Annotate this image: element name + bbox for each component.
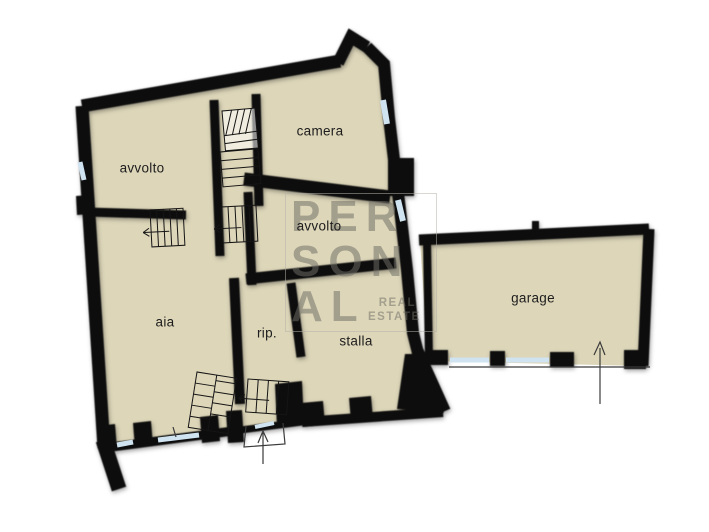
- room-label-aia: aia: [156, 315, 175, 330]
- watermark-subtext-line: ESTATE: [368, 311, 416, 325]
- room-label-garage: garage: [511, 291, 555, 306]
- room-label-avvolto-center: avvolto: [297, 219, 342, 234]
- room-label-stalla: stalla: [339, 334, 372, 349]
- watermark-subtext: REAL ESTATE: [368, 297, 416, 324]
- room-label-rip: rip.: [257, 326, 277, 341]
- floor-plan: avvoltocameraavvoltoaiarip.stallagarage …: [0, 0, 709, 532]
- room-label-camera: camera: [297, 124, 344, 139]
- window: [117, 442, 133, 445]
- staircase: [222, 108, 258, 151]
- watermark-subtext-line: REAL: [368, 297, 416, 311]
- window: [383, 100, 387, 124]
- watermark-text: SON: [291, 239, 436, 284]
- room-label-avvolto-nw: avvolto: [120, 161, 165, 176]
